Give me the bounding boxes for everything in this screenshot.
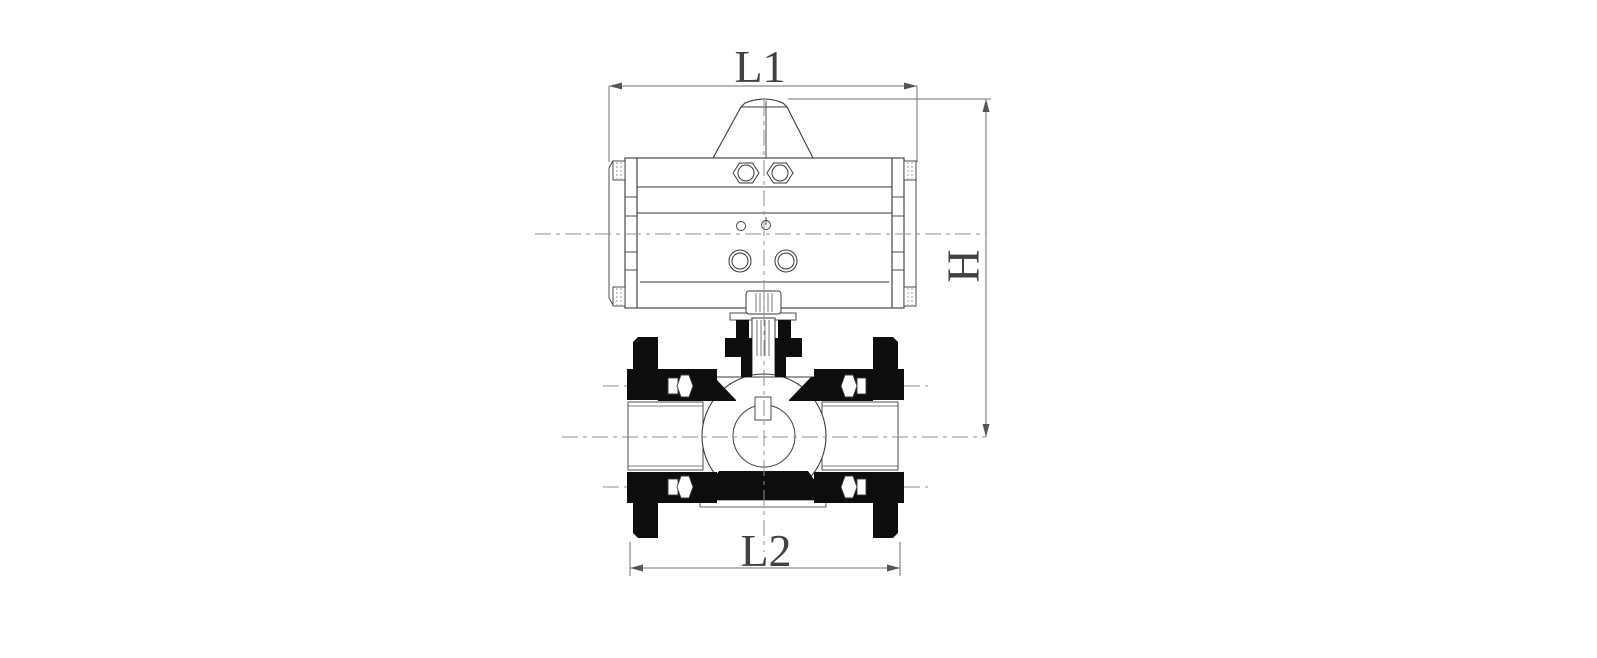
dimension-label-l2: L2	[740, 525, 791, 576]
valve-technical-drawing: L1 H L2	[0, 0, 1597, 658]
bottom-plate	[700, 500, 826, 507]
dimension-label-h: H	[938, 249, 989, 282]
actuator-cap-face-left	[609, 161, 613, 305]
actuator-top-cap	[713, 99, 813, 158]
stem-tang	[755, 397, 771, 420]
actuator-end-cap-left	[625, 158, 637, 308]
actuator-cap-face-right	[912, 161, 916, 305]
pneumatic-actuator	[609, 99, 916, 308]
dimension-label-l1: L1	[734, 41, 785, 92]
actuator-end-cap-right	[892, 158, 904, 308]
drawing-canvas: L1 H L2	[0, 0, 1597, 658]
bore-right	[822, 402, 898, 470]
bore-left	[628, 402, 703, 470]
